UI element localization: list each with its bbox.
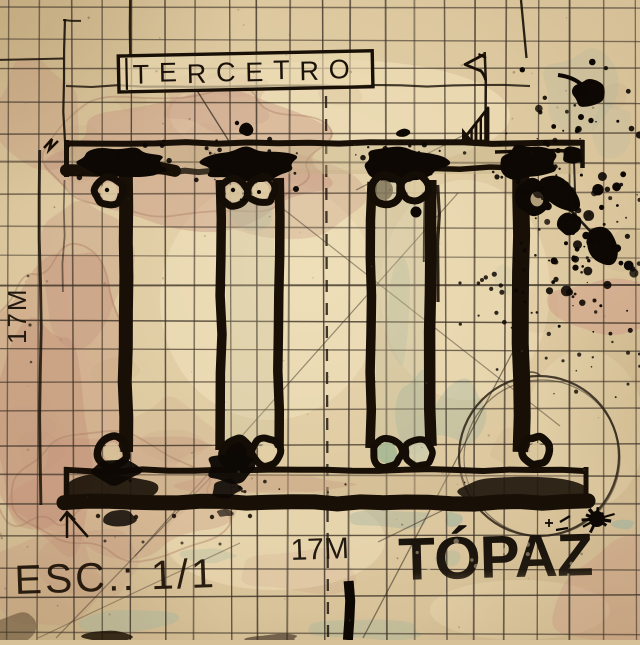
svg-text:TERCETRO: TERCETRO — [132, 53, 360, 90]
svg-text:TÓPAZ: TÓPAZ — [398, 521, 594, 593]
svg-text:17M: 17M — [2, 287, 32, 344]
svg-text:ESC.: 1/1: ESC.: 1/1 — [14, 550, 218, 603]
svg-text:17M: 17M — [290, 532, 349, 567]
